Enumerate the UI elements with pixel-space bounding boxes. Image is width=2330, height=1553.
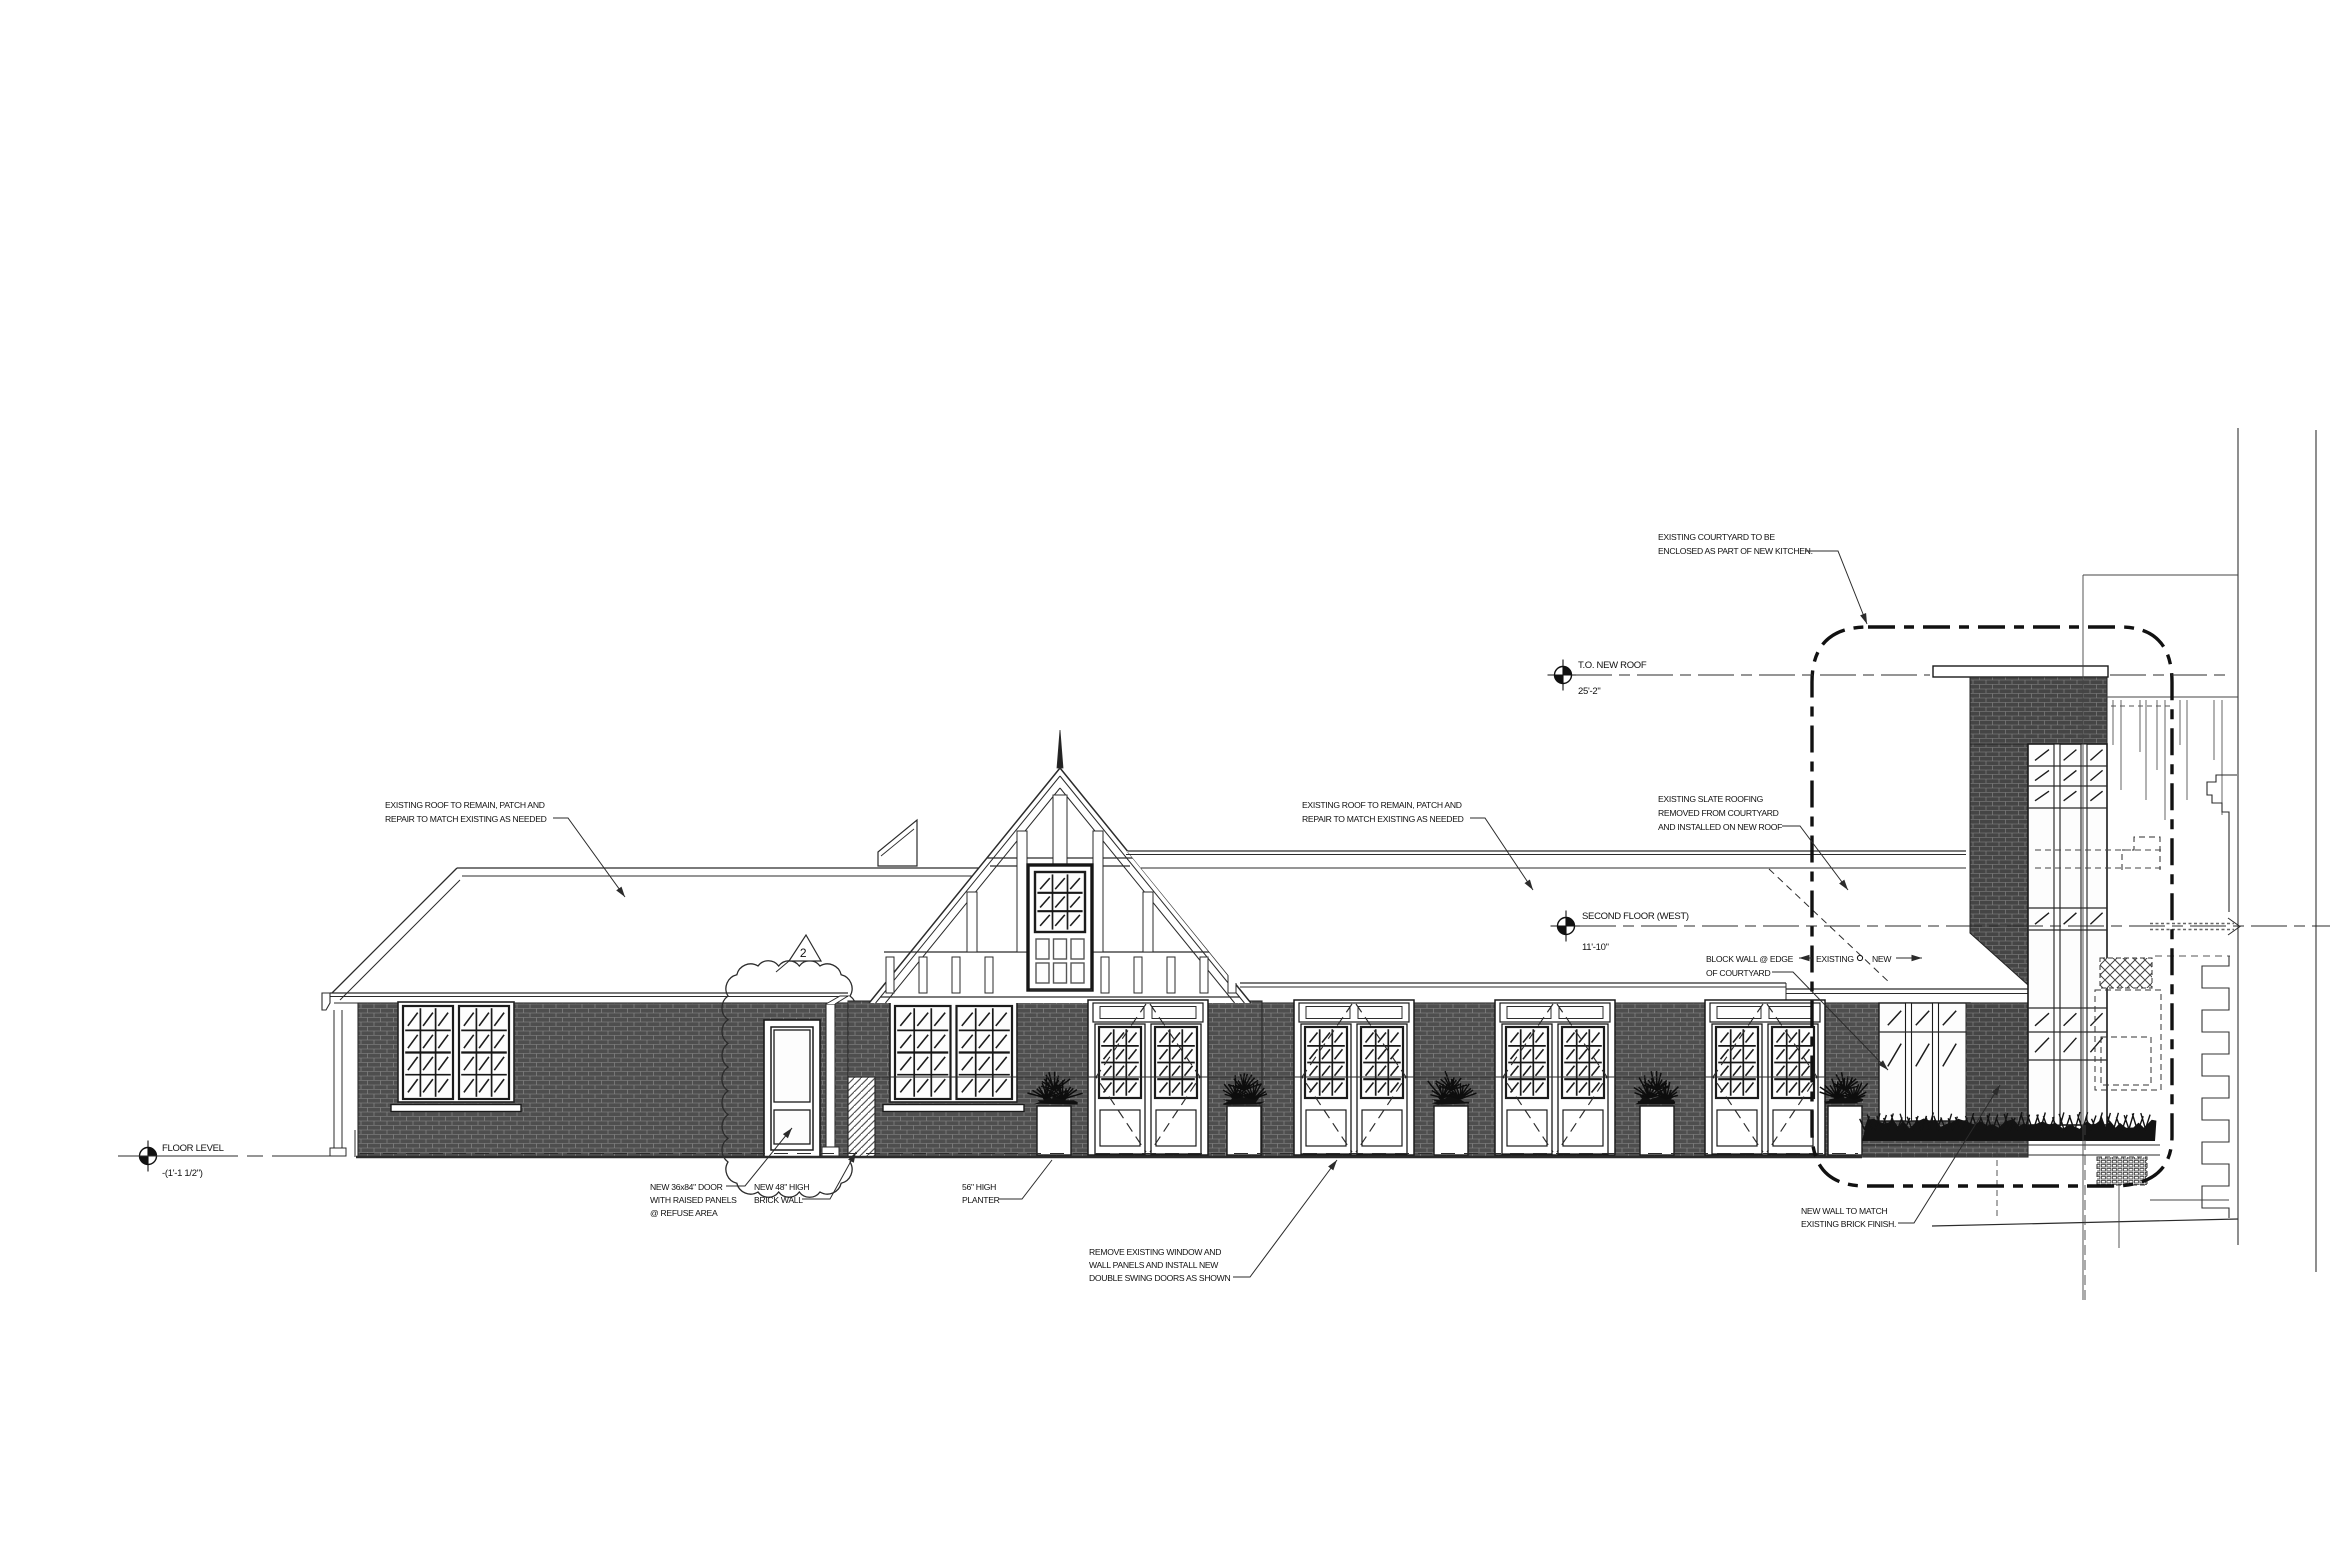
svg-text:BLOCK WALL @ EDGE: BLOCK WALL @ EDGE [1706,954,1794,964]
svg-text:AND INSTALLED ON NEW ROOF: AND INSTALLED ON NEW ROOF [1658,822,1782,832]
svg-text:REPAIR TO MATCH EXISTING AS NE: REPAIR TO MATCH EXISTING AS NEEDED [385,814,547,824]
svg-text:REMOVE EXISTING WINDOW AND: REMOVE EXISTING WINDOW AND [1089,1247,1221,1257]
svg-text:REMOVED FROM COURTYARD: REMOVED FROM COURTYARD [1658,808,1779,818]
svg-text:EXISTING BRICK FINISH.: EXISTING BRICK FINISH. [1801,1219,1896,1229]
svg-text:SECOND FLOOR (WEST): SECOND FLOOR (WEST) [1582,911,1689,922]
svg-text:EXISTING: EXISTING [1816,954,1854,964]
svg-text:2: 2 [800,946,807,960]
svg-text:FLOOR LEVEL: FLOOR LEVEL [162,1143,224,1154]
svg-text:NEW 36x84" DOOR: NEW 36x84" DOOR [650,1182,723,1192]
svg-text:WITH RAISED PANELS: WITH RAISED PANELS [650,1195,737,1205]
svg-text:REPAIR TO MATCH EXISTING AS NE: REPAIR TO MATCH EXISTING AS NEEDED [1302,814,1464,824]
svg-text:BRICK WALL: BRICK WALL [754,1195,803,1205]
svg-text:@ REFUSE AREA: @ REFUSE AREA [650,1208,718,1218]
svg-text:NEW 48" HIGH: NEW 48" HIGH [754,1182,809,1192]
svg-text:ENCLOSED AS PART OF NEW KITCHE: ENCLOSED AS PART OF NEW KITCHEN. [1658,546,1813,556]
svg-text:PLANTER: PLANTER [962,1195,1000,1205]
svg-text:NEW WALL TO MATCH: NEW WALL TO MATCH [1801,1206,1888,1216]
svg-text:56" HIGH: 56" HIGH [962,1182,996,1192]
svg-text:EXISTING ROOF TO REMAIN, PATCH: EXISTING ROOF TO REMAIN, PATCH AND [385,800,545,810]
svg-text:25'-2": 25'-2" [1578,686,1600,697]
svg-text:DOUBLE SWING DOORS AS SHOWN: DOUBLE SWING DOORS AS SHOWN [1089,1273,1230,1283]
svg-text:11'-10": 11'-10" [1582,942,1609,953]
svg-text:OF COURTYARD: OF COURTYARD [1706,968,1770,978]
svg-text:EXISTING SLATE ROOFING: EXISTING SLATE ROOFING [1658,794,1764,804]
svg-text:-(1'-1 1/2"): -(1'-1 1/2") [162,1168,203,1179]
svg-text:NEW: NEW [1872,954,1892,964]
svg-text:WALL PANELS AND INSTALL NEW: WALL PANELS AND INSTALL NEW [1089,1260,1219,1270]
svg-text:EXISTING COURTYARD TO BE: EXISTING COURTYARD TO BE [1658,532,1775,542]
svg-text:EXISTING ROOF TO REMAIN, PATCH: EXISTING ROOF TO REMAIN, PATCH AND [1302,800,1462,810]
svg-text:T.O. NEW ROOF: T.O. NEW ROOF [1578,660,1647,671]
